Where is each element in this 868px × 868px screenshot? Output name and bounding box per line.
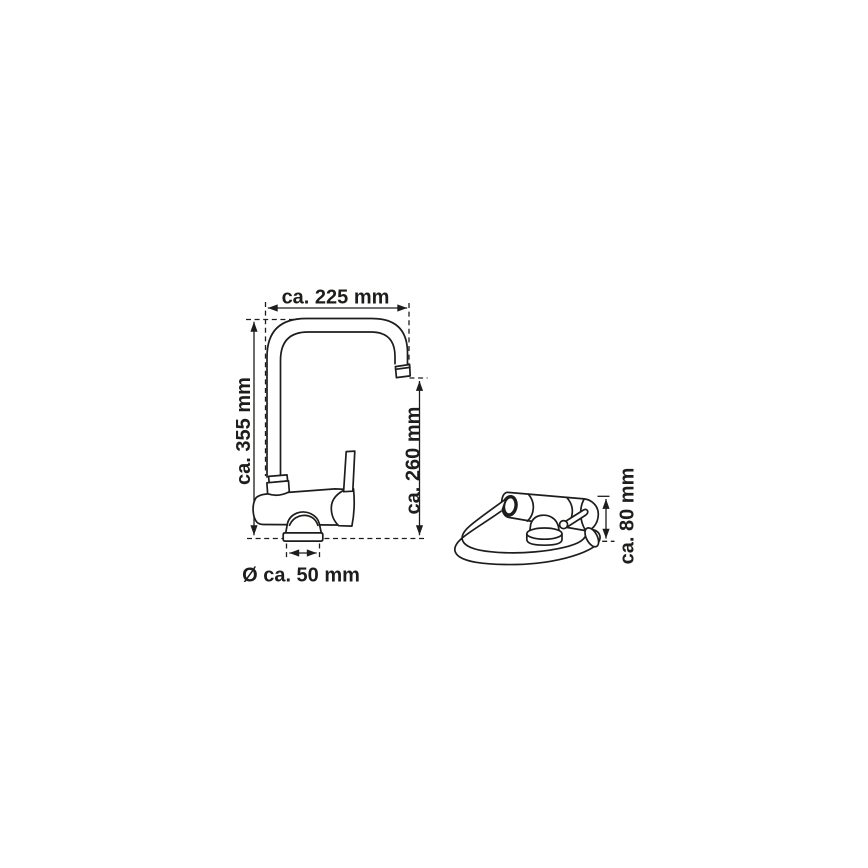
- spout-socket-opening: [502, 496, 517, 516]
- dim-label-outlet-height: ca. 260 mm: [403, 407, 425, 515]
- spout-outline-outer: [267, 319, 408, 478]
- faucet-side-view: [253, 319, 410, 542]
- faucet-folded-view: [455, 492, 602, 564]
- dim-label-base-diameter: Ø ca. 50 mm: [242, 565, 360, 587]
- dim-label-total-height: ca. 355 mm: [233, 377, 255, 485]
- folded-base-flange-top: [527, 528, 562, 539]
- technical-drawing: ca. 225 mm ca. 355 mm ca. 260 mm Ø ca. 5…: [0, 0, 868, 868]
- spout-collar: [267, 481, 289, 495]
- dim-label-spout-reach: ca. 225 mm: [282, 287, 390, 309]
- folded-lever-pivot: [560, 521, 568, 529]
- dim-label-folded-height: ca. 80 mm: [617, 468, 639, 565]
- base-plate: [283, 533, 323, 541]
- page: ca. 225 mm ca. 355 mm ca. 260 mm Ø ca. 5…: [0, 0, 868, 868]
- spout-outline-inner: [281, 332, 396, 477]
- mixer-lever: [344, 451, 355, 492]
- spout-aerator: [395, 365, 410, 378]
